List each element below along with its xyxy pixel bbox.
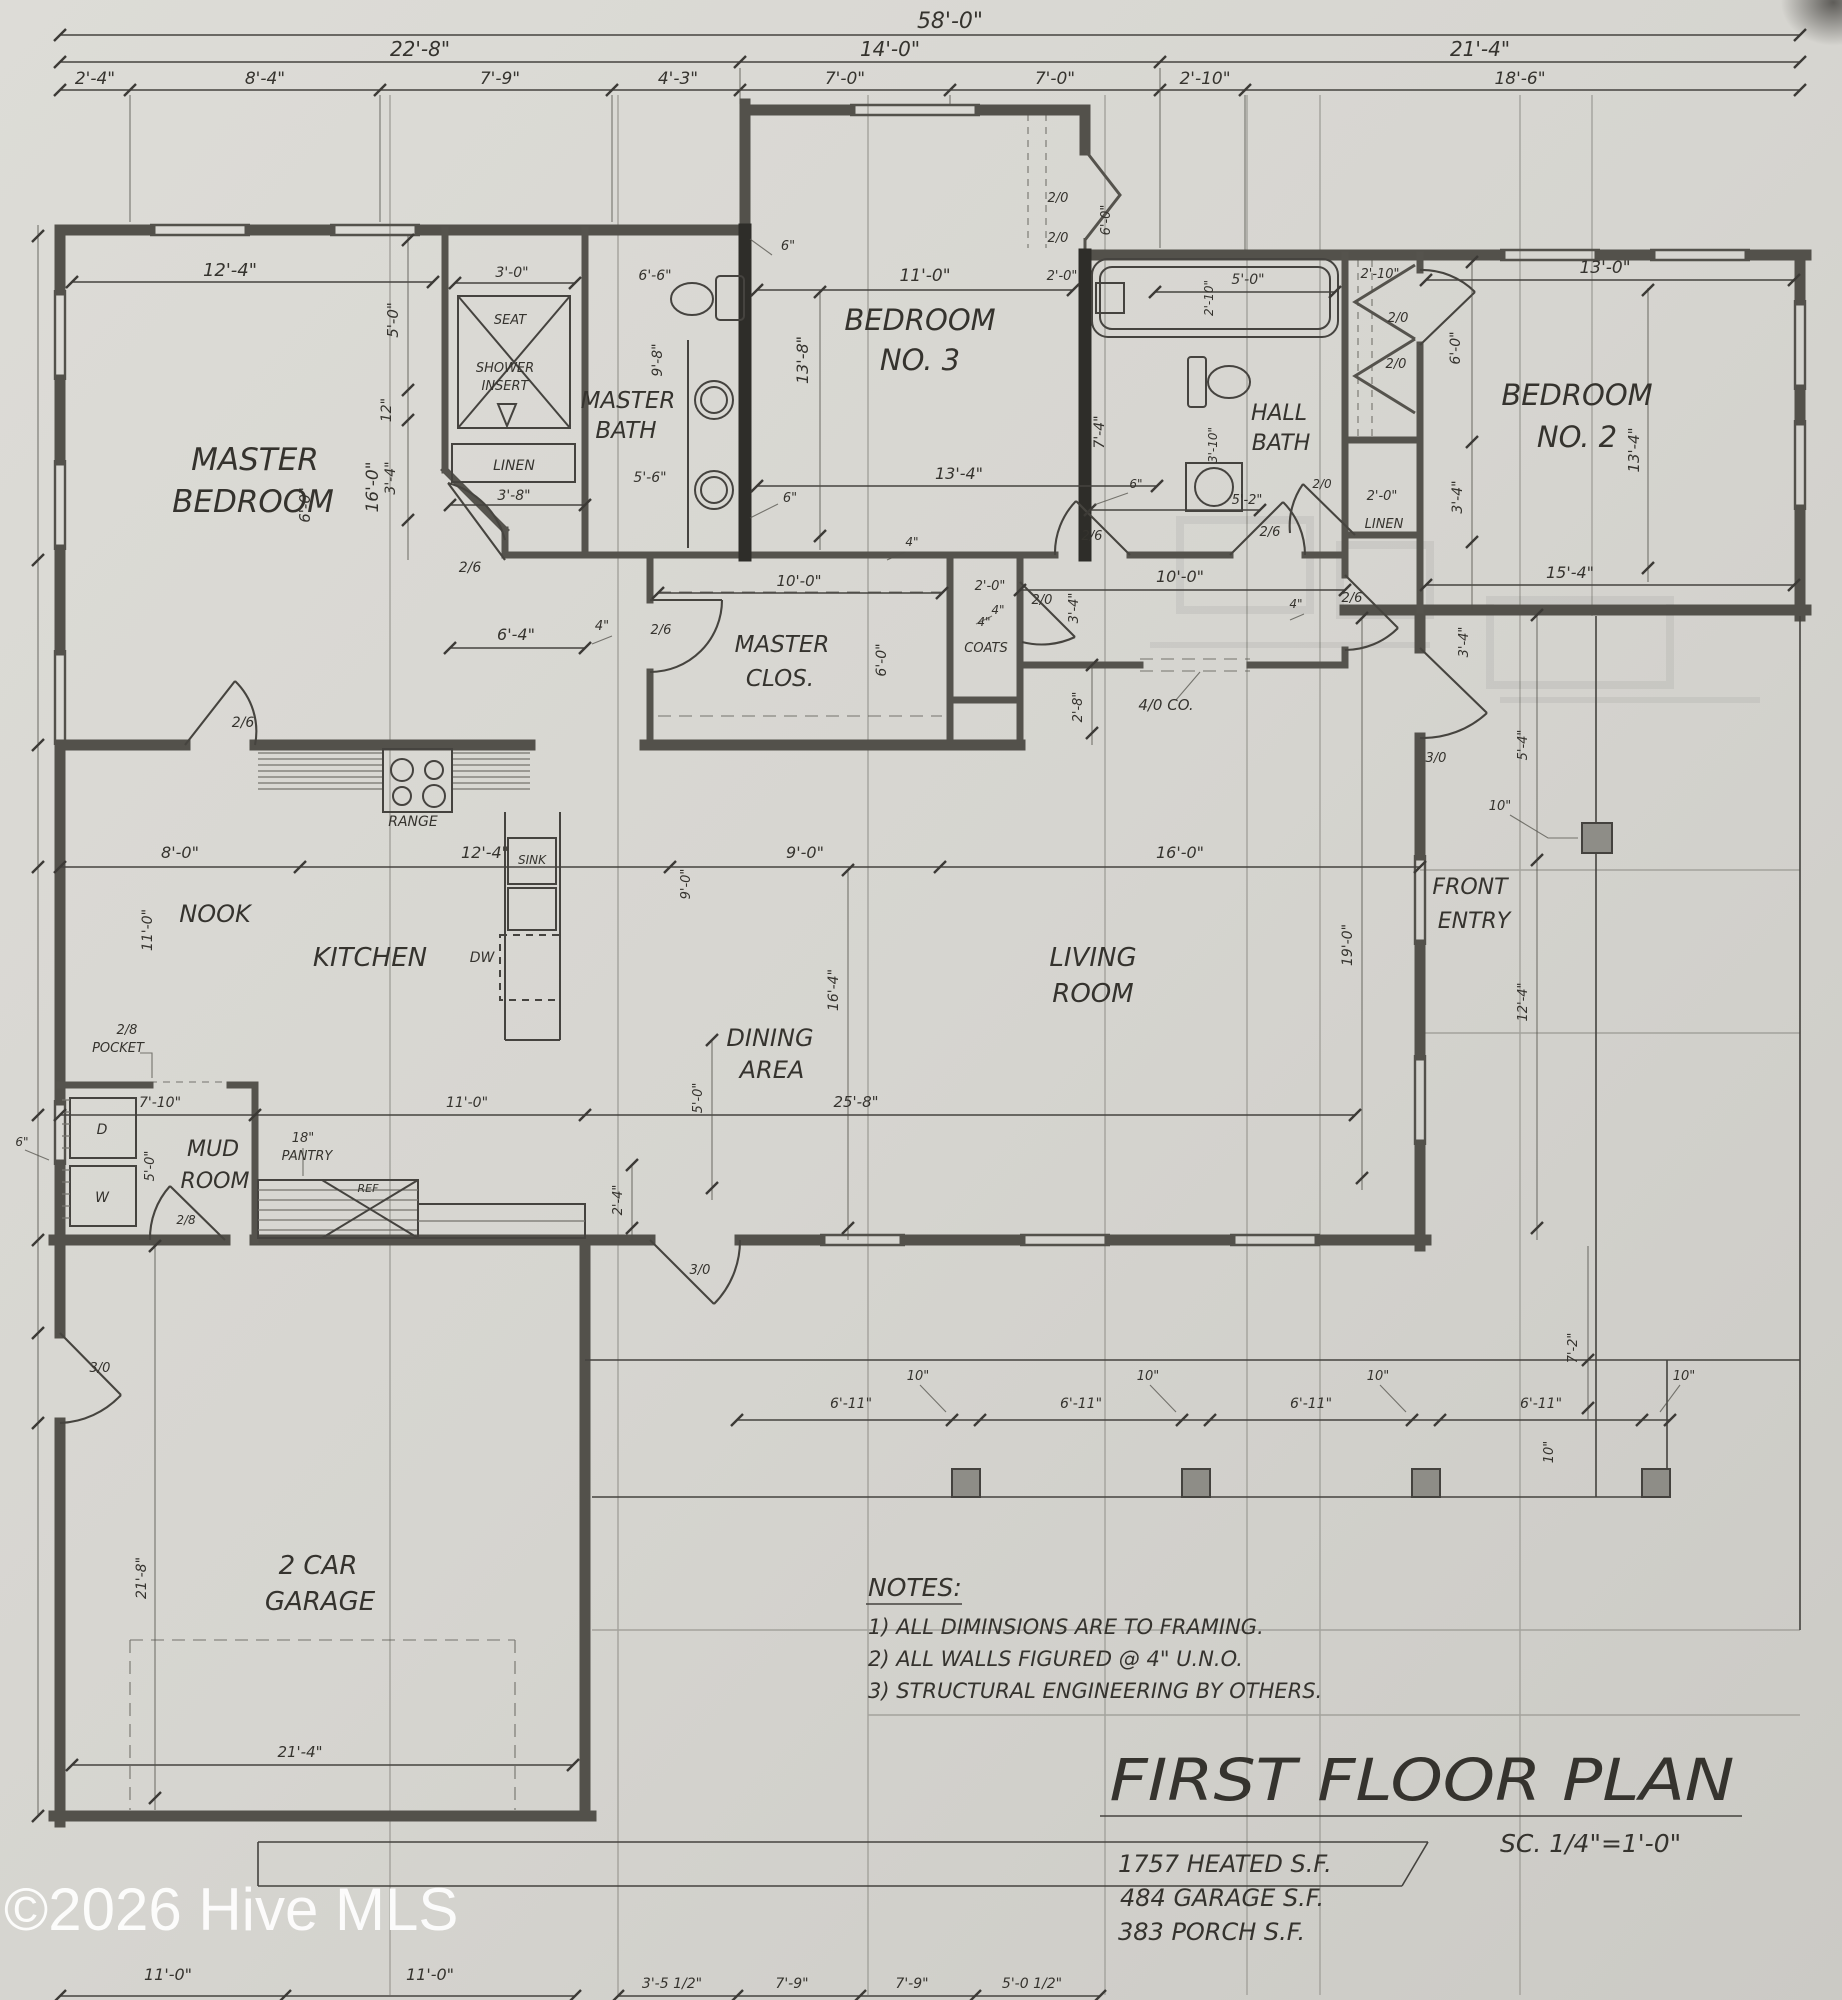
dim-bottom-2: 11'-0" xyxy=(406,1965,454,1984)
room-nook: NOOK xyxy=(179,900,253,928)
dim-linen2: 2'-0" xyxy=(1367,489,1398,504)
dim-dining-5: 5'-0" xyxy=(691,1083,706,1114)
dim-overall: 58'-0" xyxy=(917,9,983,34)
dim-porch-10: 10" xyxy=(1673,1369,1696,1384)
dim-corridor: 10'-0" xyxy=(1156,567,1204,586)
dim-mbath-6b: 6" xyxy=(783,491,797,506)
door-pocket-size: 2/8 xyxy=(117,1023,138,1038)
dim-bed2-cl: 6'-0" xyxy=(1448,331,1464,364)
dim-nook-h: 11'-0" xyxy=(140,909,156,951)
dim-row2-mid: 14'-0" xyxy=(860,37,920,61)
dim-hbath-6: 6" xyxy=(1129,477,1142,491)
dim-hall-4: 4" xyxy=(595,619,609,634)
dim-row2-left: 22'-8" xyxy=(390,37,450,61)
door-bed3-closet: 2/0 xyxy=(1048,191,1069,206)
dim-mbath-l: 9'-8" xyxy=(650,343,666,376)
room-living: ROOM xyxy=(1052,979,1133,1009)
room-master-closet: CLOS. xyxy=(746,666,814,692)
fixture-washer: W xyxy=(95,1190,110,1206)
dim-porch-bay: 6'-11" xyxy=(1060,1396,1102,1412)
dim-master-b: 12" xyxy=(379,398,395,422)
room-hall-bath: HALL xyxy=(1251,401,1307,426)
area-garage: 484 GARAGE S.F. xyxy=(1120,1884,1324,1912)
fixture-sink: SINK xyxy=(518,853,547,867)
dim-band2-living: 25'-8" xyxy=(833,1093,878,1111)
door-cased-opening: 4/0 CO. xyxy=(1138,696,1193,714)
dim-vest: 2'-10" xyxy=(1360,267,1399,282)
door-bed2-closet: 2/0 xyxy=(1386,357,1407,372)
dim-band-nook: 8'-0" xyxy=(161,843,199,862)
door-master: 2/6 xyxy=(459,560,482,576)
dim-mbath-b: 5'-6" xyxy=(633,470,666,486)
dim-porch-10: 10" xyxy=(1367,1369,1390,1384)
dim-bed2-b: 15'-4" xyxy=(1546,563,1594,582)
room-mud: MUD xyxy=(187,1137,239,1162)
dim-band2-kitchen: 11'-0" xyxy=(446,1095,488,1111)
notes-heading: NOTES: xyxy=(868,1573,962,1602)
dim-dining-h: 16'-4" xyxy=(826,969,842,1011)
dim-row2-right: 21'-4" xyxy=(1450,37,1510,61)
room-master-bedroom: MASTER xyxy=(191,442,319,478)
room-entry: ENTRY xyxy=(1438,909,1512,934)
dim-mud-w: 5'-0" xyxy=(143,1151,158,1182)
dim-clos-d: 6'-0" xyxy=(874,643,890,676)
door-corridor-w: 2/0 xyxy=(1032,593,1053,608)
dim-bed3-h: 13'-8" xyxy=(793,336,812,384)
dim-garage-door: 21'-4" xyxy=(277,1743,322,1761)
dim-bed3-w: 11'-0" xyxy=(899,266,950,286)
dim-master-width: 12'-4" xyxy=(203,260,257,281)
room-coats: COATS xyxy=(964,641,1007,656)
room-garage: 2 CAR xyxy=(279,1551,358,1581)
room-bedroom3: NO. 3 xyxy=(880,343,960,377)
label-shower: SHOWER xyxy=(476,361,534,376)
dim-porch-bay: 6'-11" xyxy=(1520,1396,1562,1412)
room-master-bath: BATH xyxy=(595,418,656,444)
fixture-ref: REF xyxy=(358,1182,380,1195)
dim-bottom-3: 3'-5 1/2" xyxy=(642,1976,702,1992)
dim-master-6: 6'-0" xyxy=(296,487,314,523)
dim-row3-3: 7'-9" xyxy=(480,69,520,89)
room-dining: AREA xyxy=(738,1056,805,1084)
dim-porch-bay: 6'-11" xyxy=(830,1396,872,1412)
dim-master-a: 5'-0" xyxy=(384,302,402,338)
door-garage-side: 3/0 xyxy=(90,1361,111,1376)
dim-bed2-c: 3'-4" xyxy=(1450,480,1466,513)
dim-band2-mud: 7'-10" xyxy=(139,1095,181,1111)
room-living: LIVING xyxy=(1049,943,1136,973)
label-seat: SEAT xyxy=(494,313,527,328)
dim-mbath-6: 6" xyxy=(781,239,795,254)
dim-bottom-5: 7'-9" xyxy=(895,1976,928,1992)
dim-corr-4: 4" xyxy=(977,615,990,629)
room-garage: GARAGE xyxy=(265,1587,376,1617)
note-item: 2) ALL WALLS FIGURED @ 4" U.N.O. xyxy=(868,1647,1243,1671)
room-entry: FRONT xyxy=(1432,875,1509,900)
dim-coats-4: 4" xyxy=(991,603,1004,617)
dim-bed3-cl-h: 6'-0" xyxy=(1099,205,1114,236)
dim-entry-124: 12'-4" xyxy=(1516,982,1531,1021)
fixture-range: RANGE xyxy=(388,814,438,830)
porch-column xyxy=(952,1469,980,1497)
dim-band-kitchen: 12'-4" xyxy=(461,843,509,862)
dim-entry-54: 5'-4" xyxy=(1516,730,1531,761)
label-pocket: POCKET xyxy=(92,1041,145,1056)
photo-shadow-corner xyxy=(1550,0,1842,240)
dim-coats-w: 2'-0" xyxy=(975,579,1006,594)
entry-column xyxy=(1582,823,1612,853)
dim-bed3-b: 13'-4" xyxy=(935,464,983,483)
dim-mud-6: 6" xyxy=(15,1135,28,1149)
dim-bed3-cl-w: 2'-0" xyxy=(1047,269,1078,284)
porch-column xyxy=(1182,1469,1210,1497)
dim-bottom-4: 7'-9" xyxy=(775,1976,808,1992)
dim-linen: 3'-8" xyxy=(497,488,530,504)
dim-hall-64: 6'-4" xyxy=(497,625,535,644)
dim-living-h: 19'-0" xyxy=(1340,924,1356,966)
dim-tub-w: 2'-10" xyxy=(1202,280,1216,316)
room-mud: ROOM xyxy=(181,1169,250,1194)
dim-shower: 3'-0" xyxy=(495,265,528,281)
dim-master-c: 3'-4" xyxy=(383,461,399,494)
dim-bed2-h: 13'-4" xyxy=(1625,427,1643,472)
fixture-dryer: D xyxy=(97,1122,108,1138)
door-bed3: 2/6 xyxy=(1082,529,1103,544)
room-bedroom2: BEDROOM xyxy=(1501,378,1652,412)
label-linen2: LINEN xyxy=(1365,517,1404,532)
dim-wc: 3'-10" xyxy=(1206,427,1220,463)
dim-row3-8: 18'-6" xyxy=(1494,69,1545,89)
door-mud: 2/8 xyxy=(176,1213,196,1227)
porch-column xyxy=(1642,1469,1670,1497)
label-shower: INSERT xyxy=(482,379,530,394)
room-kitchen: KITCHEN xyxy=(313,943,427,973)
note-item: 3) STRUCTURAL ENGINEERING BY OTHERS. xyxy=(868,1679,1322,1703)
floor-plan-sheet: 58'-0" 22'-8" 14'-0" 21'-4" 2'-4" 8'-4" … xyxy=(0,0,1842,2000)
dim-corr-28: 2'-8" xyxy=(1071,692,1086,723)
dim-row3-5: 7'-0" xyxy=(825,69,865,89)
room-bedroom2: NO. 2 xyxy=(1537,420,1617,454)
area-porch: 383 PORCH S.F. xyxy=(1118,1918,1305,1946)
dim-dining-9: 9'-0" xyxy=(679,869,694,900)
dim-row3-1: 2'-4" xyxy=(75,69,115,89)
dim-porch-10: 10" xyxy=(907,1369,930,1384)
door-rear: 3/0 xyxy=(690,1263,711,1278)
dim-hbath-b: 5'-2" xyxy=(1232,493,1263,508)
room-dining: DINING xyxy=(726,1024,813,1052)
dim-dining-24: 2'-4" xyxy=(611,1185,626,1216)
room-hall-bath: BATH xyxy=(1252,431,1311,456)
dim-master-height: 16'-0" xyxy=(363,461,383,512)
dim-clos-w: 10'-0" xyxy=(776,572,821,590)
fixture-dw: DW xyxy=(470,950,496,966)
door-linen-hall: 2/0 xyxy=(1312,477,1332,491)
dim-porch-10: 10" xyxy=(1137,1369,1160,1384)
porch-column xyxy=(1412,1469,1440,1497)
dim-row3-4: 4'-3" xyxy=(658,69,698,89)
watermark: ©2026 Hive MLS xyxy=(4,1876,458,1943)
dim-bed2-w: 13'-0" xyxy=(1579,258,1630,278)
dim-bed3-4: 4" xyxy=(905,535,918,549)
room-bedroom3: BEDROOM xyxy=(844,303,995,337)
dim-corr-34b: 3'-4" xyxy=(1457,627,1472,658)
room-pantry: PANTRY xyxy=(282,1149,334,1164)
floor-plan-drawing: 58'-0" 22'-8" 14'-0" 21'-4" 2'-4" 8'-4" … xyxy=(0,0,1842,2000)
dim-corr-4r: 4" xyxy=(1289,597,1302,611)
dim-porch-72: 7'-2" xyxy=(1566,1333,1581,1364)
label-linen: LINEN xyxy=(493,458,535,474)
dim-tub: 5'-0" xyxy=(1231,272,1264,288)
door-front: 3/0 xyxy=(1426,751,1447,766)
room-master-bath: MASTER xyxy=(581,388,676,414)
dim-mbath-w: 6'-6" xyxy=(638,268,671,284)
room-master-closet: MASTER xyxy=(735,632,830,658)
dim-entry-10: 10" xyxy=(1489,799,1512,814)
dim-garage-h: 21'-8" xyxy=(134,1557,150,1599)
dim-bottom-6: 5'-0 1/2" xyxy=(1002,1976,1062,1992)
area-heated: 1757 HEATED S.F. xyxy=(1118,1850,1332,1878)
dim-row3-7: 2'-10" xyxy=(1179,69,1230,89)
dim-porch-10: 10" xyxy=(1542,1441,1557,1464)
dim-porch-bay: 6'-11" xyxy=(1290,1396,1332,1412)
door-bed3-closet: 2/0 xyxy=(1048,231,1069,246)
dim-bottom-1: 11'-0" xyxy=(144,1965,192,1984)
dim-band-dining: 9'-0" xyxy=(786,843,824,862)
note-item: 1) ALL DIMINSIONS ARE TO FRAMING. xyxy=(868,1615,1264,1639)
dim-corr-34: 3'-4" xyxy=(1067,593,1082,624)
door-corridor-e: 2/6 xyxy=(1342,591,1363,606)
dim-row3-2: 8'-4" xyxy=(245,69,285,89)
door-bed2-closet: 2/0 xyxy=(1388,311,1409,326)
dim-pantry-18: 18" xyxy=(292,1131,315,1146)
dim-bed3-e: 7'-4" xyxy=(1092,415,1108,448)
sheet-scale: SC. 1/4"=1'-0" xyxy=(1500,1829,1681,1858)
sheet-title: FIRST FLOOR PLAN xyxy=(1110,1746,1735,1814)
door-closet: 2/6 xyxy=(651,623,672,638)
dim-row3-6: 7'-0" xyxy=(1035,69,1075,89)
dim-band-living: 16'-0" xyxy=(1156,843,1204,862)
door-hallbath: 2/6 xyxy=(1260,525,1281,540)
door-nook: 2/6 xyxy=(232,715,255,731)
